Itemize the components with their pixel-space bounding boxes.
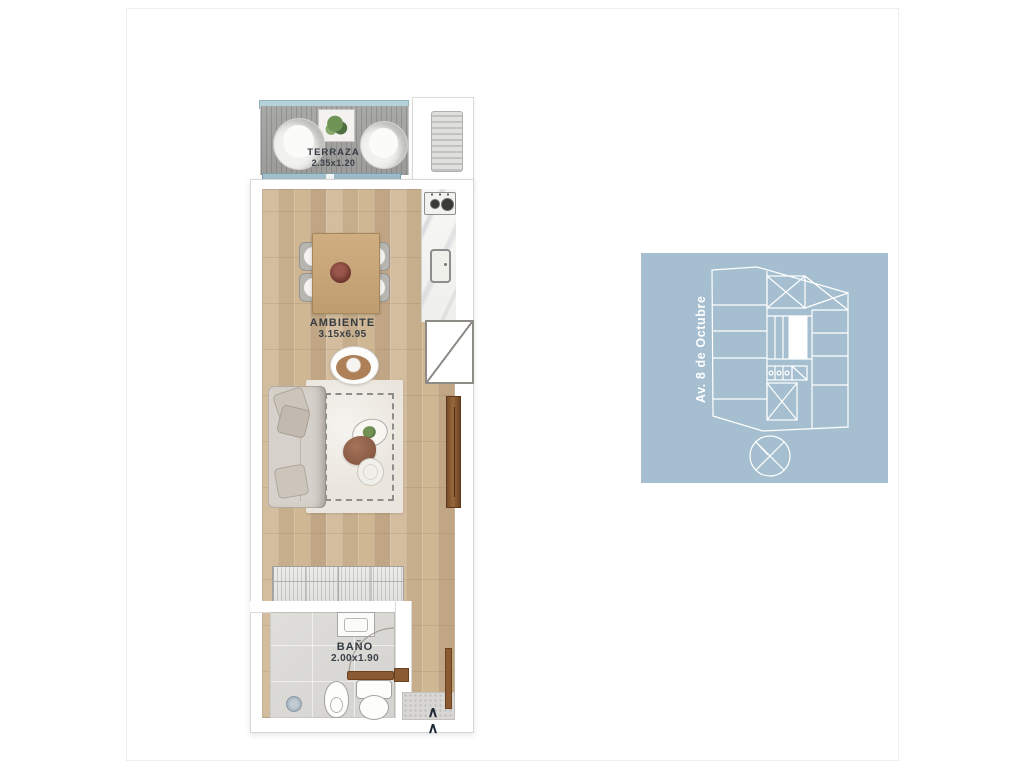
highlighted-unit xyxy=(789,316,807,359)
bano-room-name: BAÑO xyxy=(300,641,410,653)
entry-direction-icon: ∧ xyxy=(421,722,445,736)
ambiente-room-dims: 3.15x6.95 xyxy=(285,329,400,340)
bano-room-dims: 2.00x1.90 xyxy=(300,653,410,664)
terrace-room-name: TERRAZA xyxy=(262,147,405,158)
floorplan-canvas: TERRAZA 2.35x1.20 AMBIENTE 3.15x6.95 xyxy=(0,0,1024,768)
bath-door-leaf xyxy=(347,671,394,680)
ambiente-room-name: AMBIENTE xyxy=(285,317,400,329)
wood-door-panel xyxy=(446,396,461,508)
corridor-door-strip xyxy=(445,648,452,709)
terrace-label: TERRAZA 2.35x1.20 xyxy=(262,147,405,168)
keyplan: Av. 8 de Octubre xyxy=(641,253,888,483)
ac-unit-icon xyxy=(431,111,463,172)
bano-label: BAÑO 2.00x1.90 xyxy=(300,641,410,664)
wardrobe xyxy=(272,566,404,604)
keyplan-background xyxy=(641,253,888,483)
cooktop-knobs xyxy=(428,193,452,196)
kitchen-sink xyxy=(430,249,451,283)
sofa-pillow xyxy=(274,464,310,500)
table-centerpiece xyxy=(330,262,351,283)
entry-direction-icon: ∧ xyxy=(421,706,445,720)
burner-small xyxy=(430,199,440,209)
street-label: Av. 8 de Octubre xyxy=(694,295,708,403)
side-table xyxy=(357,458,384,486)
terrace-room-dims: 2.35x1.20 xyxy=(262,158,405,168)
storage-shaft xyxy=(425,320,474,384)
ambiente-label: AMBIENTE 3.15x6.95 xyxy=(285,317,400,340)
lounge-chair xyxy=(330,346,379,385)
bath-door-jamb xyxy=(394,668,409,682)
burner-large xyxy=(441,198,454,211)
